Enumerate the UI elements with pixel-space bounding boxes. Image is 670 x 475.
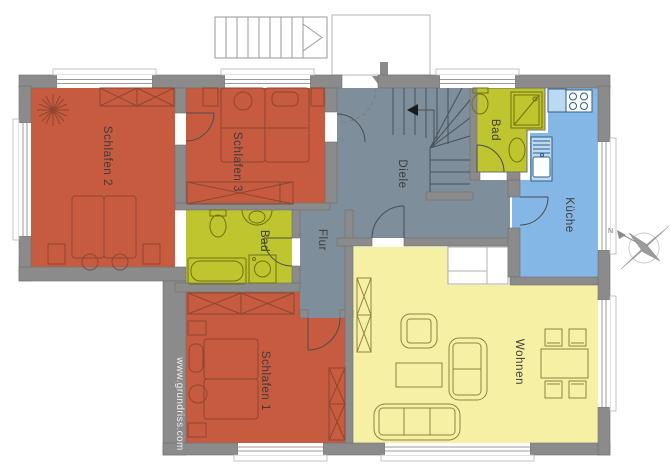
kitchen-counter (548, 89, 566, 112)
compass-icon: N (608, 226, 669, 269)
stove (566, 90, 592, 112)
window-top-diele (436, 69, 519, 88)
label-bad-lower: Bad (258, 230, 270, 252)
label-schlafen-1: Schlafen 1 (259, 351, 271, 411)
window-left-schlafen2 (13, 119, 31, 240)
pantry-niche (448, 247, 508, 284)
watermark-text: www.grundriss.com (174, 356, 185, 451)
floor-plan: Schlafen 2 Schlafen 3 Diele Flur Bad Bad… (0, 0, 670, 475)
kitchen-sink-unit (531, 137, 552, 181)
label-wohnen: Wohnen (513, 339, 525, 385)
window-bottom-schlafen1 (234, 443, 327, 461)
window-top-schlafen2 (53, 69, 156, 88)
window-right-wohnen (598, 296, 616, 411)
label-schlafen-2: Schlafen 2 (101, 126, 113, 186)
label-kueche: Küche (563, 197, 575, 233)
window-right-kueche (598, 138, 616, 254)
window-bottom-wohnen (381, 443, 534, 461)
compass-north-label: N (608, 228, 613, 235)
window-top-schlafen3 (221, 69, 314, 88)
room-flur (300, 203, 345, 318)
label-bad-upper: Bad (489, 119, 501, 141)
label-flur: Flur (316, 229, 328, 251)
label-diele: Diele (396, 159, 408, 188)
outdoor-stairs (215, 17, 327, 58)
label-schlafen-3: Schlafen 3 (231, 132, 243, 192)
